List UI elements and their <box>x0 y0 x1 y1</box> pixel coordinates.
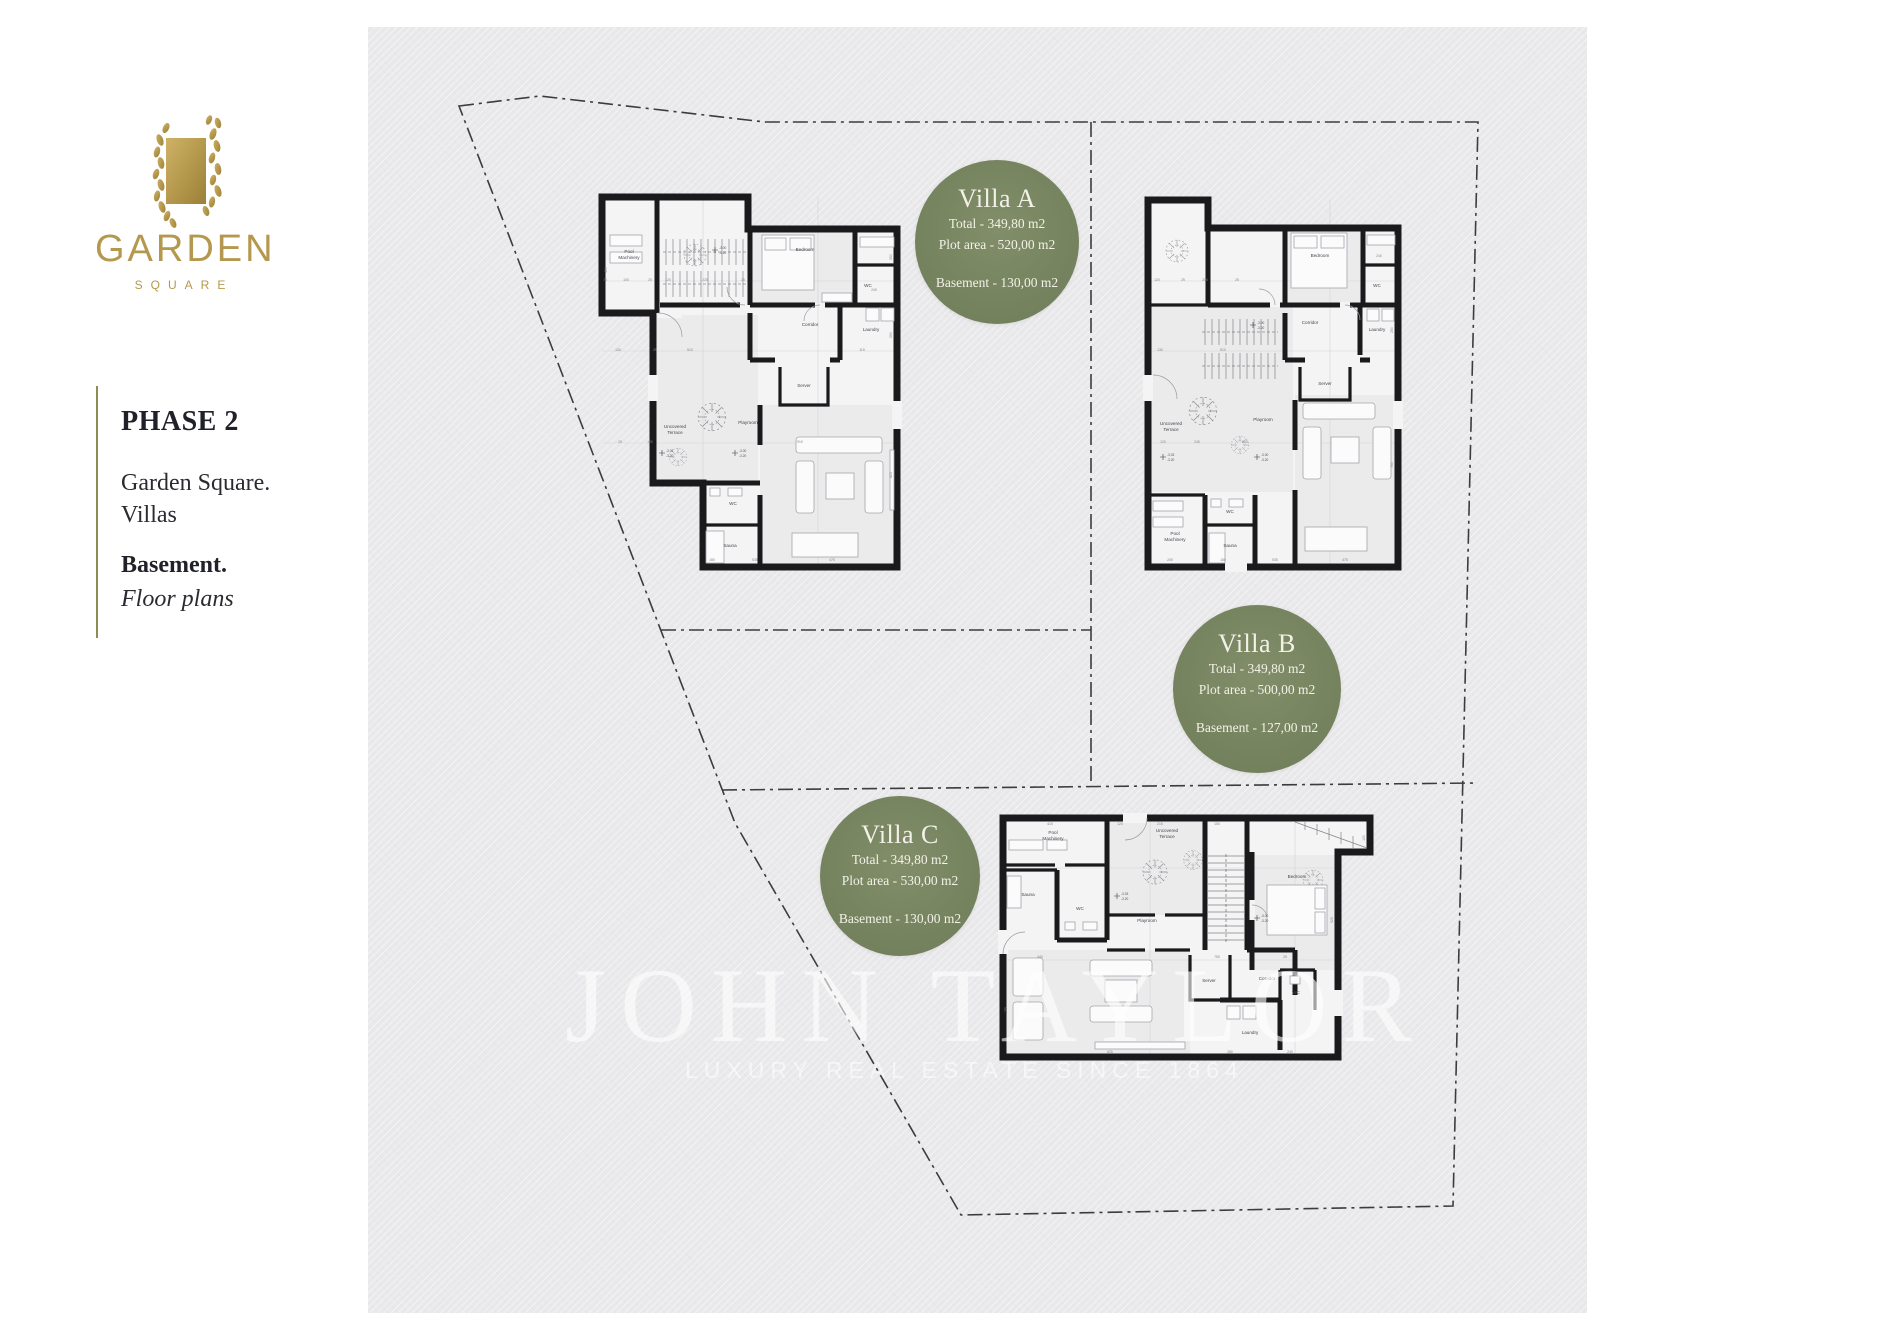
phase-title: PHASE 2 <box>121 406 239 438</box>
room-label: WC <box>729 501 737 506</box>
room-label: Uncovered <box>664 424 687 429</box>
svg-text:120: 120 <box>1160 440 1166 444</box>
room-label: Playroom <box>738 420 758 425</box>
svg-text:510: 510 <box>687 348 693 352</box>
svg-text:25: 25 <box>1181 278 1185 282</box>
villa-c-badge: Villa C Total - 349,80 m2 Plot area - 53… <box>820 796 980 956</box>
villa-b-badge: Villa B Total - 349,80 m2 Plot area - 50… <box>1173 605 1341 773</box>
svg-text:535: 535 <box>752 558 758 562</box>
watermark-tagline: LUXURY REAL ESTATE SINCE 1864 <box>685 1057 1244 1084</box>
room-label: Machinery <box>1042 836 1064 841</box>
room-label: WC <box>1076 906 1084 911</box>
villa-a-basement: Basement - 130,00 m2 <box>915 273 1079 294</box>
svg-text:120: 120 <box>1117 822 1123 826</box>
level-title: Basement. <box>121 552 227 579</box>
room-label: Uncovered <box>1160 421 1183 426</box>
svg-text:475: 475 <box>1342 558 1348 562</box>
villa-b-floorplan: Bedroom WC Corridor Laundry Server Uncov… <box>1145 195 1405 575</box>
room-label: Bedroom <box>1311 253 1330 258</box>
room-label: Machinery <box>618 255 640 260</box>
room-label: WC <box>1373 283 1381 288</box>
room-label: Server <box>1318 381 1332 386</box>
room-label: Terrace <box>1163 427 1179 432</box>
room-label: Machinery <box>1164 537 1186 542</box>
project-type: Villas <box>121 502 177 529</box>
villa-a-plot: Plot area - 520,00 m2 <box>915 235 1079 256</box>
svg-text:100: 100 <box>623 278 629 282</box>
svg-text:25: 25 <box>648 278 652 282</box>
villa-c-title: Villa C <box>820 820 980 850</box>
svg-text:-3.20: -3.20 <box>739 454 746 458</box>
svg-text:25: 25 <box>741 278 745 282</box>
villa-a-title: Villa A <box>915 184 1079 214</box>
villa-c-plot: Plot area - 530,00 m2 <box>820 871 980 892</box>
room-label: WC <box>1226 509 1234 514</box>
svg-text:-3.20: -3.20 <box>719 251 726 255</box>
room-label: Terrace <box>1159 834 1175 839</box>
svg-text:205: 205 <box>1167 558 1173 562</box>
room-label: Sauna <box>1223 543 1237 548</box>
room-label: Playroom <box>1253 417 1273 422</box>
svg-text:910: 910 <box>797 440 803 444</box>
room-label: Bedroom <box>1288 874 1307 879</box>
room-label: Corridor <box>1302 320 1319 325</box>
svg-text:-3.20: -3.20 <box>1121 897 1128 901</box>
room-label: Laundry <box>1369 327 1386 332</box>
svg-text:535: 535 <box>1272 558 1278 562</box>
svg-text:180: 180 <box>1220 558 1226 562</box>
svg-text:510: 510 <box>1220 348 1226 352</box>
room-label: Playroom <box>1137 918 1157 923</box>
room-label: Bedroom <box>796 247 815 252</box>
villa-a-total: Total - 349,80 m2 <box>915 214 1079 235</box>
svg-text:240: 240 <box>871 288 877 292</box>
page: GARDEN SQUARE PHASE 2 Garden Square. Vil… <box>0 0 1900 1341</box>
svg-text:115: 115 <box>859 348 865 352</box>
villa-c-total: Total - 349,80 m2 <box>820 850 980 871</box>
svg-text:640: 640 <box>1242 440 1248 444</box>
project-name: Garden Square. <box>121 470 270 497</box>
room-label: Uncovered <box>1156 828 1179 833</box>
svg-text:245: 245 <box>1194 440 1200 444</box>
svg-text:25: 25 <box>1235 278 1239 282</box>
svg-text:-3.00: -3.00 <box>1261 914 1268 918</box>
svg-text:825: 825 <box>889 472 893 478</box>
svg-text:240: 240 <box>1376 254 1382 258</box>
svg-text:-3.00: -3.00 <box>739 449 746 453</box>
svg-text:400: 400 <box>604 267 608 273</box>
svg-text:180: 180 <box>709 558 715 562</box>
svg-text:-3.03: -3.03 <box>1121 892 1128 896</box>
villa-b-plot: Plot area - 500,00 m2 <box>1173 680 1341 701</box>
room-label: Terrace <box>667 430 683 435</box>
room-label: Sauna <box>1021 892 1035 897</box>
svg-text:120: 120 <box>1362 835 1366 841</box>
brand-name: GARDEN <box>95 228 273 271</box>
svg-text:150: 150 <box>1214 822 1220 826</box>
svg-text:200: 200 <box>1202 278 1208 282</box>
room-label: Sauna <box>723 543 737 548</box>
brand-subtitle: SQUARE <box>95 278 273 292</box>
villa-a-floorplan: Pool Machinery Bedroom WC Corridor Laund… <box>600 195 900 575</box>
svg-text:120: 120 <box>647 440 653 444</box>
plan-canvas: Pool Machinery Bedroom WC Corridor Laund… <box>368 27 1587 1313</box>
villa-b-title: Villa B <box>1173 629 1341 659</box>
svg-text:-3.20: -3.20 <box>1257 326 1264 330</box>
room-label: Pool <box>1170 531 1179 536</box>
room-label: Laundry <box>863 327 880 332</box>
svg-text:-3.00: -3.00 <box>1261 453 1268 457</box>
svg-text:415: 415 <box>1047 822 1053 826</box>
svg-text:-3.03: -3.03 <box>666 449 673 453</box>
svg-text:-3.00: -3.00 <box>719 246 726 250</box>
brand-logo-icon <box>133 110 248 232</box>
svg-text:-3.20: -3.20 <box>1167 458 1174 462</box>
villa-b-basement: Basement - 127,00 m2 <box>1173 718 1341 739</box>
room-label: Pool <box>624 249 633 254</box>
svg-text:925: 925 <box>1330 917 1334 923</box>
svg-text:215: 215 <box>1157 822 1163 826</box>
svg-text:75: 75 <box>603 278 607 282</box>
svg-text:475: 475 <box>829 558 835 562</box>
svg-text:-3.20: -3.20 <box>666 454 673 458</box>
villa-c-basement: Basement - 130,00 m2 <box>820 909 980 930</box>
svg-text:350: 350 <box>889 254 893 260</box>
svg-text:-3.00: -3.00 <box>1257 321 1264 325</box>
level-subtitle: Floor plans <box>121 586 234 613</box>
svg-text:25: 25 <box>618 440 622 444</box>
svg-text:765: 765 <box>1390 462 1394 468</box>
svg-text:130: 130 <box>615 348 621 352</box>
svg-text:290: 290 <box>1390 327 1394 333</box>
room-label: Pool <box>1048 830 1057 835</box>
sidebar-rule <box>96 386 98 638</box>
svg-text:-3.03: -3.03 <box>1167 453 1174 457</box>
svg-text:120: 120 <box>665 278 671 282</box>
watermark-brand: JOHN TAYLOR <box>565 945 1426 1067</box>
svg-text:-3.20: -3.20 <box>1261 458 1268 462</box>
svg-text:25: 25 <box>653 348 657 352</box>
villa-a-badge: Villa A Total - 349,80 m2 Plot area - 52… <box>915 160 1079 324</box>
svg-text:120: 120 <box>1154 278 1160 282</box>
villa-b-total: Total - 349,80 m2 <box>1173 659 1341 680</box>
svg-text:220: 220 <box>702 278 708 282</box>
room-label: Corridor <box>802 322 819 327</box>
svg-text:290: 290 <box>889 332 893 338</box>
svg-text:-3.20: -3.20 <box>1261 919 1268 923</box>
svg-text:130: 130 <box>1157 348 1163 352</box>
room-label: Server <box>797 383 811 388</box>
